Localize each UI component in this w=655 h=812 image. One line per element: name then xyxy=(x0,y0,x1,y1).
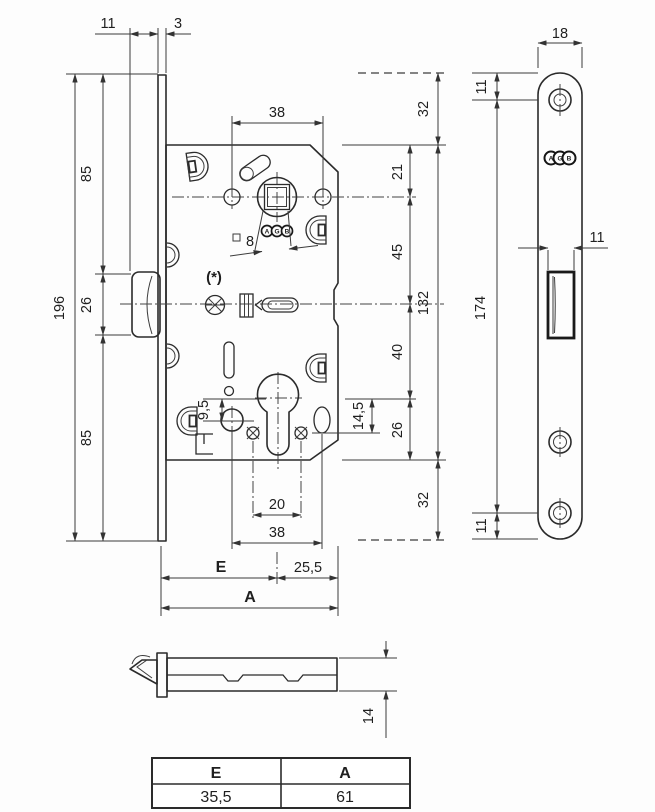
dim-label-32-bottom: 32 xyxy=(416,492,432,508)
note-asterisk: (*) xyxy=(206,269,222,286)
dim-label-26-right: 26 xyxy=(390,422,406,438)
lock-drawing-svg: 196 85 26 85 11 3 xyxy=(0,0,655,812)
bottom-view: 14 xyxy=(130,641,397,738)
side-view xyxy=(132,75,166,541)
dimension-table: E A 35,5 61 xyxy=(152,758,410,808)
dim-label-E: E xyxy=(216,559,227,576)
dim-label-85-top: 85 xyxy=(79,166,95,182)
logo-letter: A xyxy=(265,229,270,236)
dim-label-174: 174 xyxy=(473,296,489,320)
spring-clip-right-upper xyxy=(306,216,326,244)
dim-label-32-top: 32 xyxy=(416,101,432,117)
faceplate-outline xyxy=(538,73,582,539)
spring-clip-top-left xyxy=(186,151,210,182)
square-symbol xyxy=(233,234,240,241)
dim-label-38-top: 38 xyxy=(269,105,285,121)
guide-pin xyxy=(256,298,299,312)
lock-case-view: A G B 8 (*) xyxy=(120,145,444,521)
table-header-E: E xyxy=(211,765,222,782)
dim-label-132: 132 xyxy=(416,291,432,315)
case-mid-line xyxy=(167,675,337,681)
cylinder-screw-left xyxy=(247,427,259,439)
case-outline xyxy=(166,145,338,460)
fixing-screw-star xyxy=(205,296,225,315)
table-value-A: 61 xyxy=(336,789,354,806)
stop-block xyxy=(240,294,253,317)
dim-label-14: 14 xyxy=(361,708,377,724)
dim-label-21: 21 xyxy=(390,164,406,180)
dim-label-11-fp-top: 11 xyxy=(474,79,490,94)
logo-letter: G xyxy=(557,156,562,163)
angled-slot xyxy=(237,153,273,184)
dim-label-8: 8 xyxy=(246,234,254,250)
logo-letter: A xyxy=(549,156,554,163)
dim-label-40: 40 xyxy=(390,344,406,360)
spring-clip-right-lower xyxy=(306,354,326,382)
cylinder-screw-right xyxy=(295,427,307,439)
logo-letter: G xyxy=(274,229,279,236)
table-header-A: A xyxy=(339,765,351,782)
logo-letter: B xyxy=(567,156,572,163)
oval-hole-right xyxy=(314,407,330,433)
faceplate-bottom-view xyxy=(157,653,167,697)
dim-label-11-window: 11 xyxy=(589,230,604,246)
hook-bracket xyxy=(196,434,213,454)
latch-window xyxy=(548,272,574,338)
small-hole xyxy=(225,387,234,396)
dims-backset: E 25,5 A xyxy=(161,546,338,616)
dim-label-85-bottom: 85 xyxy=(79,430,95,446)
plate-tab-upper xyxy=(167,243,179,267)
dims-top: 11 3 xyxy=(95,16,191,271)
faceplate-front-view: A G B 18 11 174 11 11 xyxy=(472,26,608,539)
dim-label-25-5: 25,5 xyxy=(294,560,322,576)
dim-9-5: 9,5 xyxy=(196,399,266,421)
agb-logo-small: A G B xyxy=(262,226,293,237)
spring-clip-left-lower xyxy=(177,407,197,435)
latch-curve xyxy=(147,276,152,334)
technical-drawing-page: 196 85 26 85 11 3 xyxy=(0,0,655,812)
logo-letter: B xyxy=(285,229,290,236)
dim-label-196: 196 xyxy=(52,296,68,320)
dim-label-11-protrusion: 11 xyxy=(100,16,115,32)
dims-left: 196 85 26 85 xyxy=(52,74,158,541)
dim-label-A: A xyxy=(244,589,256,606)
dim-label-20: 20 xyxy=(269,497,285,513)
dims-right: 21 45 40 14,5 26 132 32 32 xyxy=(312,73,448,540)
dim-label-14-5: 14,5 xyxy=(351,402,367,430)
plate-tab-lower xyxy=(167,344,179,368)
vertical-slot xyxy=(224,342,234,378)
table-value-E: 35,5 xyxy=(200,789,231,806)
dim-label-3-plate: 3 xyxy=(174,16,182,32)
dim-label-11-fp-bottom: 11 xyxy=(474,518,490,533)
dim-label-38-bottom: 38 xyxy=(269,525,285,541)
dim-label-26-latch: 26 xyxy=(79,297,95,313)
dims-bottom-holes: 20 38 xyxy=(232,432,322,549)
agb-logo: A G B xyxy=(545,152,576,165)
dim-label-45: 45 xyxy=(390,244,406,260)
dim-label-18: 18 xyxy=(552,26,568,42)
dim-label-9-5: 9,5 xyxy=(196,400,212,420)
